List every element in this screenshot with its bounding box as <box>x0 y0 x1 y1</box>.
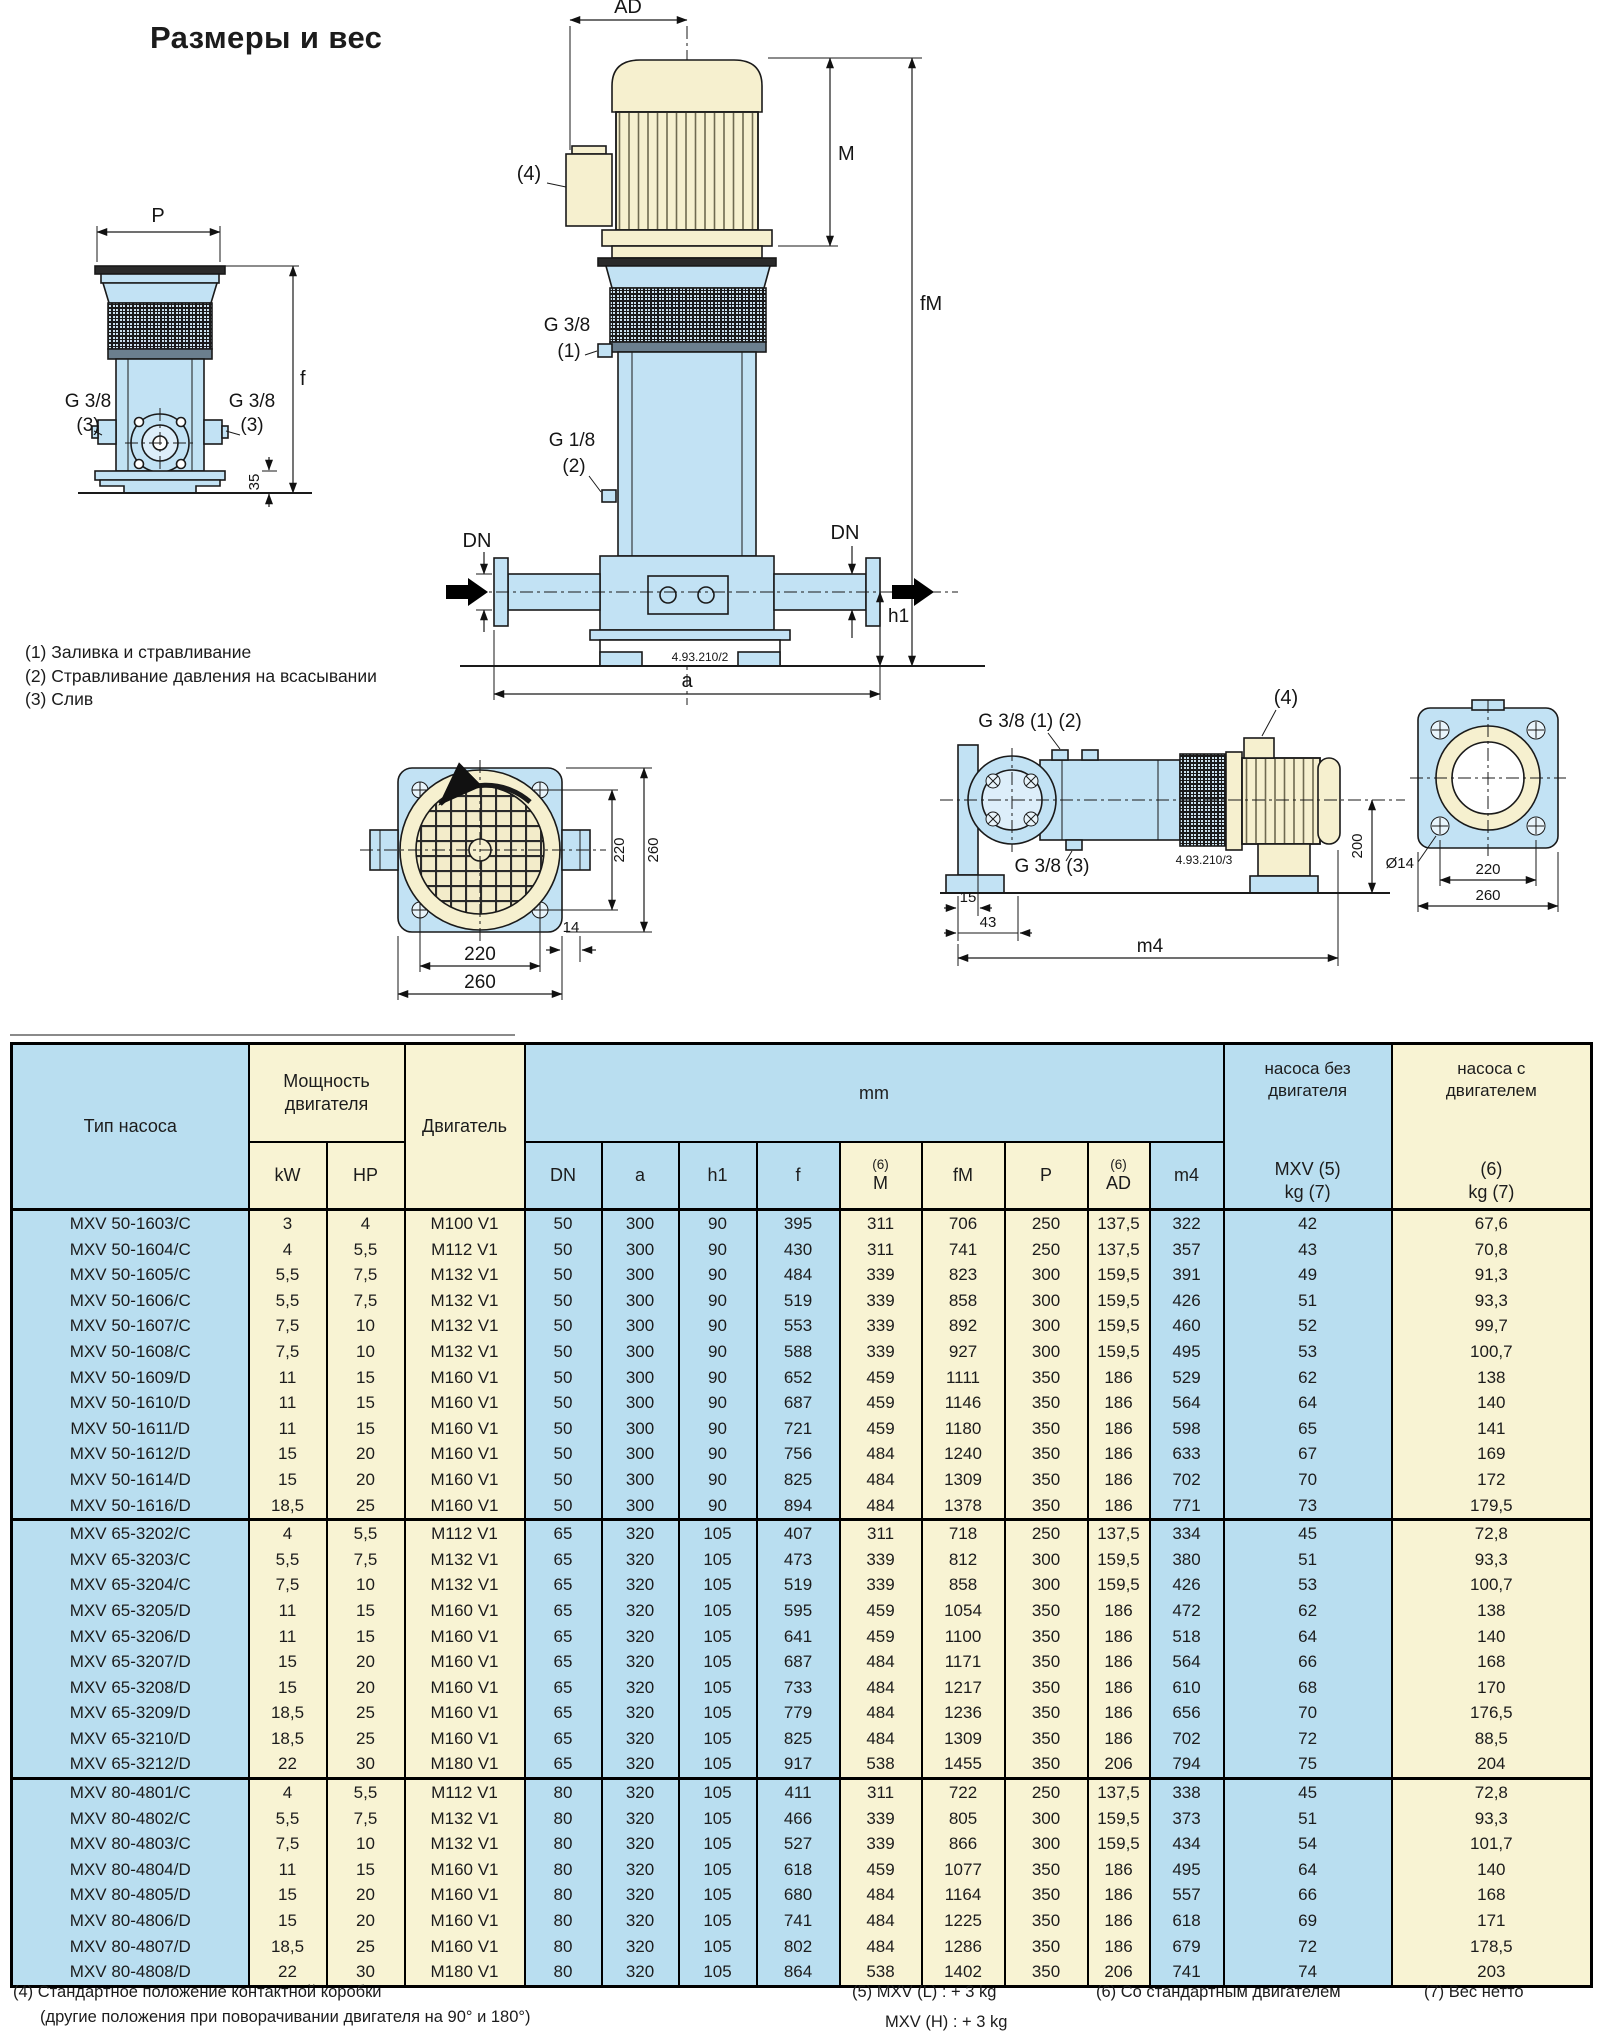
cell-ad: 137,5 <box>1088 1237 1150 1263</box>
cell-ad: 137,5 <box>1088 1210 1150 1237</box>
cell-a: 300 <box>602 1339 679 1365</box>
cell-dn: 50 <box>525 1237 602 1263</box>
table-row: MXV 65-3206/D1115M160 V16532010564145911… <box>12 1624 1592 1650</box>
cell-p: 350 <box>1005 1751 1088 1778</box>
cell-ad: 186 <box>1088 1700 1150 1726</box>
cell-f: 473 <box>757 1547 840 1573</box>
cell-ad: 186 <box>1088 1390 1150 1416</box>
cell-dn: 50 <box>525 1416 602 1442</box>
cell-f: 733 <box>757 1675 840 1701</box>
table-row: MXV 50-1605/C5,57,5M132 V150300904843398… <box>12 1262 1592 1288</box>
cell-m4: 702 <box>1150 1726 1224 1752</box>
table-row: MXV 80-4806/D1520M160 V18032010574148412… <box>12 1908 1592 1934</box>
port-label-3-left: (3) <box>76 415 99 436</box>
cell-p: 300 <box>1005 1339 1088 1365</box>
cell-dn: 65 <box>525 1520 602 1547</box>
cell-kg-pump: 64 <box>1224 1390 1392 1416</box>
cell-a: 300 <box>602 1288 679 1314</box>
cell-m: 484 <box>840 1934 922 1960</box>
cell-m4: 334 <box>1150 1520 1224 1547</box>
cell-f: 430 <box>757 1237 840 1263</box>
cell-kg-pump: 49 <box>1224 1262 1392 1288</box>
cell-type: MXV 65-3203/C <box>12 1547 249 1573</box>
table-row: MXV 50-1604/C45,5M112 V15030090430311741… <box>12 1237 1592 1263</box>
cell-kg-pump: 53 <box>1224 1339 1392 1365</box>
cell-kw: 18,5 <box>249 1700 327 1726</box>
cell-a: 320 <box>602 1751 679 1778</box>
cell-m: 339 <box>840 1806 922 1832</box>
col-header-a: a <box>602 1142 679 1209</box>
table-row: MXV 50-1616/D18,525M160 V150300908944841… <box>12 1493 1592 1520</box>
cell-dn: 80 <box>525 1806 602 1832</box>
table-row: MXV 50-1607/C7,510M132 V1503009055333989… <box>12 1313 1592 1339</box>
cell-p: 350 <box>1005 1959 1088 1986</box>
cell-hp: 15 <box>327 1598 405 1624</box>
cell-m: 484 <box>840 1649 922 1675</box>
cell-motor: M160 V1 <box>405 1934 525 1960</box>
cell-kw: 11 <box>249 1857 327 1883</box>
cell-m4: 564 <box>1150 1649 1224 1675</box>
cell-dn: 80 <box>525 1831 602 1857</box>
cell-h1: 105 <box>679 1726 757 1752</box>
note-3: (3) Слив <box>25 688 377 712</box>
cell-hp: 25 <box>327 1726 405 1752</box>
table-row: MXV 50-1614/D1520M160 V15030090825484130… <box>12 1467 1592 1493</box>
footnote-6: (6) Со стандартным двигателем <box>1096 1980 1341 2005</box>
cell-m4: 391 <box>1150 1262 1224 1288</box>
cell-fm: 718 <box>922 1520 1005 1547</box>
table-row: MXV 65-3209/D18,525M160 V165320105779484… <box>12 1700 1592 1726</box>
col-header-pump-type: Тип насоса <box>12 1044 249 1210</box>
cell-f: 721 <box>757 1416 840 1442</box>
table-row: MXV 80-4805/D1520M160 V18032010568048411… <box>12 1882 1592 1908</box>
cell-m: 484 <box>840 1467 922 1493</box>
cell-p: 350 <box>1005 1700 1088 1726</box>
cell-type: MXV 65-3212/D <box>12 1751 249 1778</box>
cell-m: 459 <box>840 1624 922 1650</box>
cell-kw: 11 <box>249 1624 327 1650</box>
cell-hp: 25 <box>327 1934 405 1960</box>
cell-motor: M160 V1 <box>405 1908 525 1934</box>
table-row: MXV 50-1609/D1115M160 V15030090652459111… <box>12 1365 1592 1391</box>
cell-hp: 20 <box>327 1675 405 1701</box>
cell-kg-total: 178,5 <box>1392 1934 1592 1960</box>
cell-dn: 80 <box>525 1934 602 1960</box>
cell-a: 320 <box>602 1624 679 1650</box>
cell-motor: M160 V1 <box>405 1365 525 1391</box>
cell-kg-total: 176,5 <box>1392 1700 1592 1726</box>
table-section: MXV 50-1603/C34M100 V1503009039531170625… <box>12 1210 1592 1520</box>
cell-kg-pump: 66 <box>1224 1882 1392 1908</box>
table-row: MXV 80-4807/D18,525M160 V180320105802484… <box>12 1934 1592 1960</box>
dim-label-14: 14 <box>563 919 580 936</box>
cell-f: 553 <box>757 1313 840 1339</box>
dim-label-h1: h1 <box>888 606 909 627</box>
cell-hp: 15 <box>327 1857 405 1883</box>
table-row: MXV 50-1606/C5,57,5M132 V150300905193398… <box>12 1288 1592 1314</box>
cell-h1: 90 <box>679 1441 757 1467</box>
cell-kw: 7,5 <box>249 1831 327 1857</box>
cell-a: 320 <box>602 1598 679 1624</box>
cell-kw: 5,5 <box>249 1547 327 1573</box>
cell-kg-total: 138 <box>1392 1598 1592 1624</box>
cell-type: MXV 50-1611/D <box>12 1416 249 1442</box>
cell-kw: 5,5 <box>249 1262 327 1288</box>
cell-hp: 20 <box>327 1882 405 1908</box>
cell-m: 339 <box>840 1339 922 1365</box>
cell-dn: 50 <box>525 1313 602 1339</box>
cell-type: MXV 50-1603/C <box>12 1210 249 1237</box>
cell-fm: 866 <box>922 1831 1005 1857</box>
cell-m4: 518 <box>1150 1624 1224 1650</box>
cell-kw: 18,5 <box>249 1493 327 1520</box>
cell-m4: 557 <box>1150 1882 1224 1908</box>
cell-h1: 105 <box>679 1547 757 1573</box>
cell-type: MXV 80-4801/C <box>12 1779 249 1806</box>
cell-m4: 434 <box>1150 1831 1224 1857</box>
cell-m: 484 <box>840 1493 922 1520</box>
cell-kw: 11 <box>249 1416 327 1442</box>
cell-h1: 105 <box>679 1700 757 1726</box>
port-label-g38-12: G 3/8 (1) (2) <box>978 711 1081 732</box>
cell-a: 320 <box>602 1726 679 1752</box>
cell-fm: 1225 <box>922 1908 1005 1934</box>
cell-kw: 11 <box>249 1598 327 1624</box>
cell-hp: 20 <box>327 1649 405 1675</box>
cell-m4: 679 <box>1150 1934 1224 1960</box>
cell-fm: 1286 <box>922 1934 1005 1960</box>
cell-p: 350 <box>1005 1726 1088 1752</box>
cell-type: MXV 65-3202/C <box>12 1520 249 1547</box>
cell-h1: 90 <box>679 1493 757 1520</box>
cell-p: 350 <box>1005 1416 1088 1442</box>
cell-m4: 495 <box>1150 1339 1224 1365</box>
cell-h1: 105 <box>679 1779 757 1806</box>
cell-a: 320 <box>602 1649 679 1675</box>
table-header: Тип насоса Мощность двигателя Двигатель … <box>12 1044 1592 1210</box>
cell-fm: 1309 <box>922 1726 1005 1752</box>
cell-hp: 25 <box>327 1493 405 1520</box>
cell-m: 459 <box>840 1416 922 1442</box>
cell-ad: 186 <box>1088 1726 1150 1752</box>
col-header-mm: mm <box>525 1044 1224 1143</box>
cell-a: 320 <box>602 1520 679 1547</box>
cell-ad: 186 <box>1088 1675 1150 1701</box>
cell-a: 300 <box>602 1262 679 1288</box>
cell-ad: 186 <box>1088 1416 1150 1442</box>
cell-kg-pump: 45 <box>1224 1779 1392 1806</box>
cell-kg-total: 138 <box>1392 1365 1592 1391</box>
cell-kw: 15 <box>249 1441 327 1467</box>
cell-kw: 4 <box>249 1520 327 1547</box>
cell-p: 350 <box>1005 1624 1088 1650</box>
cell-p: 350 <box>1005 1467 1088 1493</box>
port-label-g38: G 3/8 <box>544 315 590 336</box>
cell-h1: 90 <box>679 1288 757 1314</box>
cell-dn: 50 <box>525 1365 602 1391</box>
cell-ad: 137,5 <box>1088 1520 1150 1547</box>
table-row: MXV 65-3212/D2230M180 V16532010591753814… <box>12 1751 1592 1778</box>
cell-hp: 20 <box>327 1441 405 1467</box>
cell-p: 300 <box>1005 1313 1088 1339</box>
table-row: MXV 80-4803/C7,510M132 V1803201055273398… <box>12 1831 1592 1857</box>
cell-hp: 20 <box>327 1467 405 1493</box>
cell-kw: 15 <box>249 1908 327 1934</box>
cell-f: 519 <box>757 1572 840 1598</box>
cell-kg-total: 171 <box>1392 1908 1592 1934</box>
dim-label-220-horiz: 220 <box>464 944 496 965</box>
cell-fm: 805 <box>922 1806 1005 1832</box>
cell-m: 538 <box>840 1751 922 1778</box>
cell-f: 825 <box>757 1726 840 1752</box>
cell-fm: 1180 <box>922 1416 1005 1442</box>
cell-dn: 50 <box>525 1210 602 1237</box>
cell-f: 652 <box>757 1365 840 1391</box>
cell-kg-pump: 62 <box>1224 1598 1392 1624</box>
cell-f: 917 <box>757 1751 840 1778</box>
cell-type: MXV 50-1608/C <box>12 1339 249 1365</box>
cell-h1: 90 <box>679 1365 757 1391</box>
cell-m: 339 <box>840 1547 922 1573</box>
cell-kg-total: 100,7 <box>1392 1572 1592 1598</box>
cell-p: 300 <box>1005 1288 1088 1314</box>
cell-p: 350 <box>1005 1441 1088 1467</box>
cell-kg-total: 101,7 <box>1392 1831 1592 1857</box>
cell-kg-total: 172 <box>1392 1467 1592 1493</box>
cell-kg-pump: 54 <box>1224 1831 1392 1857</box>
cell-kw: 11 <box>249 1365 327 1391</box>
cell-kg-pump: 75 <box>1224 1751 1392 1778</box>
dim-label-f: f <box>300 368 306 390</box>
cell-ad: 186 <box>1088 1908 1150 1934</box>
dim-label-p: P <box>151 205 164 227</box>
cell-a: 300 <box>602 1441 679 1467</box>
cell-hp: 15 <box>327 1365 405 1391</box>
table-row: MXV 80-4804/D1115M160 V18032010561845910… <box>12 1857 1592 1883</box>
dim-label-d14: Ø14 <box>1386 855 1414 872</box>
table-row: MXV 80-4802/C5,57,5M132 V180320105466339… <box>12 1806 1592 1832</box>
note-1: (1) Заливка и стравливание <box>25 641 377 665</box>
cell-ad: 186 <box>1088 1493 1150 1520</box>
cell-f: 527 <box>757 1831 840 1857</box>
cell-p: 350 <box>1005 1390 1088 1416</box>
cell-type: MXV 65-3205/D <box>12 1598 249 1624</box>
dim-label-15: 15 <box>960 889 977 906</box>
cell-fm: 858 <box>922 1288 1005 1314</box>
cell-a: 320 <box>602 1675 679 1701</box>
cell-kw: 18,5 <box>249 1934 327 1960</box>
cell-dn: 65 <box>525 1598 602 1624</box>
cell-motor: M160 V1 <box>405 1700 525 1726</box>
cell-f: 484 <box>757 1262 840 1288</box>
cell-h1: 105 <box>679 1624 757 1650</box>
cell-a: 300 <box>602 1237 679 1263</box>
cell-dn: 80 <box>525 1882 602 1908</box>
cell-p: 350 <box>1005 1908 1088 1934</box>
cell-m: 484 <box>840 1882 922 1908</box>
cell-motor: M160 V1 <box>405 1441 525 1467</box>
cell-m: 459 <box>840 1598 922 1624</box>
cell-kw: 5,5 <box>249 1806 327 1832</box>
dim-label-m4: m4 <box>1137 936 1164 957</box>
dim-label-a: a <box>681 670 693 692</box>
cell-kw: 7,5 <box>249 1572 327 1598</box>
cell-kg-total: 99,7 <box>1392 1313 1592 1339</box>
cell-hp: 5,5 <box>327 1237 405 1263</box>
port-label-g38-right: G 3/8 <box>229 391 275 412</box>
cell-hp: 7,5 <box>327 1288 405 1314</box>
cell-kw: 3 <box>249 1210 327 1237</box>
cell-f: 741 <box>757 1908 840 1934</box>
cell-hp: 30 <box>327 1751 405 1778</box>
cell-fm: 1455 <box>922 1751 1005 1778</box>
table-row: MXV 50-1610/D1115M160 V15030090687459114… <box>12 1390 1592 1416</box>
cell-hp: 7,5 <box>327 1547 405 1573</box>
cell-p: 250 <box>1005 1520 1088 1547</box>
cell-ad: 186 <box>1088 1857 1150 1883</box>
cell-m: 311 <box>840 1520 922 1547</box>
cell-m: 311 <box>840 1210 922 1237</box>
cell-h1: 90 <box>679 1262 757 1288</box>
cell-motor: M132 V1 <box>405 1313 525 1339</box>
cell-hp: 20 <box>327 1908 405 1934</box>
cell-motor: M112 V1 <box>405 1237 525 1263</box>
col-header-m: (6) M <box>840 1142 922 1209</box>
cell-motor: M160 V1 <box>405 1624 525 1650</box>
cell-type: MXV 50-1609/D <box>12 1365 249 1391</box>
cell-m4: 618 <box>1150 1908 1224 1934</box>
cell-motor: M100 V1 <box>405 1210 525 1237</box>
dim-label-dn-left: DN <box>463 530 492 552</box>
cell-m4: 564 <box>1150 1390 1224 1416</box>
cell-motor: M112 V1 <box>405 1520 525 1547</box>
port-label-2: (2) <box>562 456 585 477</box>
cell-fm: 812 <box>922 1547 1005 1573</box>
cell-p: 350 <box>1005 1365 1088 1391</box>
cell-kg-pump: 70 <box>1224 1700 1392 1726</box>
table-row: MXV 50-1603/C34M100 V1503009039531170625… <box>12 1210 1592 1237</box>
cell-fm: 1054 <box>922 1598 1005 1624</box>
cell-p: 300 <box>1005 1262 1088 1288</box>
cell-kg-pump: 52 <box>1224 1313 1392 1339</box>
cell-m4: 357 <box>1150 1237 1224 1263</box>
cell-type: MXV 80-4806/D <box>12 1908 249 1934</box>
dim-label-dn-right: DN <box>831 522 860 544</box>
cell-kg-total: 179,5 <box>1392 1493 1592 1520</box>
table-row: MXV 65-3208/D1520M160 V16532010573348412… <box>12 1675 1592 1701</box>
cell-ad: 159,5 <box>1088 1831 1150 1857</box>
cell-m4: 771 <box>1150 1493 1224 1520</box>
cell-motor: M160 V1 <box>405 1416 525 1442</box>
cell-ad: 186 <box>1088 1467 1150 1493</box>
cell-m4: 794 <box>1150 1751 1224 1778</box>
cell-motor: M160 V1 <box>405 1882 525 1908</box>
cell-fm: 858 <box>922 1572 1005 1598</box>
cell-h1: 105 <box>679 1572 757 1598</box>
cell-kg-total: 170 <box>1392 1675 1592 1701</box>
footnote-7: (7) Вес нетто <box>1424 1980 1524 2005</box>
port-label-g38-3: G 3/8 (3) <box>1015 856 1090 877</box>
cell-a: 300 <box>602 1390 679 1416</box>
table-row: MXV 50-1608/C7,510M132 V1503009058833992… <box>12 1339 1592 1365</box>
cell-type: MXV 50-1604/C <box>12 1237 249 1263</box>
legend-notes: (1) Заливка и стравливание (2) Стравлива… <box>25 641 377 712</box>
cell-a: 320 <box>602 1806 679 1832</box>
cell-dn: 65 <box>525 1751 602 1778</box>
cell-h1: 105 <box>679 1831 757 1857</box>
col-header-power: Мощность двигателя <box>249 1044 405 1143</box>
footnote-5: (5) MXV (L) : + 3 kg MXV (H) : + 3 kg <box>852 1980 1007 2035</box>
cell-f: 641 <box>757 1624 840 1650</box>
cell-type: MXV 80-4804/D <box>12 1857 249 1883</box>
table-row: MXV 65-3202/C45,5M112 V16532010540731171… <box>12 1520 1592 1547</box>
col-header-weight-pump-only: насоса без двигателя MXV (5) kg (7) <box>1224 1044 1392 1210</box>
cell-m: 484 <box>840 1908 922 1934</box>
cell-kg-total: 140 <box>1392 1624 1592 1650</box>
table-row: MXV 50-1611/D1115M160 V15030090721459118… <box>12 1416 1592 1442</box>
cell-p: 300 <box>1005 1831 1088 1857</box>
table-row: MXV 80-4801/C45,5M112 V18032010541131172… <box>12 1779 1592 1806</box>
cell-motor: M132 V1 <box>405 1806 525 1832</box>
cell-type: MXV 65-3210/D <box>12 1726 249 1752</box>
table-row: MXV 65-3207/D1520M160 V16532010568748411… <box>12 1649 1592 1675</box>
cell-p: 350 <box>1005 1675 1088 1701</box>
cell-motor: M132 V1 <box>405 1288 525 1314</box>
cell-m: 459 <box>840 1365 922 1391</box>
cell-dn: 80 <box>525 1857 602 1883</box>
cell-m4: 338 <box>1150 1779 1224 1806</box>
cell-kg-pump: 69 <box>1224 1908 1392 1934</box>
cell-ad: 186 <box>1088 1365 1150 1391</box>
port-label-g18: G 1/8 <box>549 430 595 451</box>
cell-ad: 159,5 <box>1088 1547 1150 1573</box>
cell-p: 250 <box>1005 1210 1088 1237</box>
cell-kw: 22 <box>249 1751 327 1778</box>
cell-dn: 65 <box>525 1649 602 1675</box>
cell-hp: 15 <box>327 1624 405 1650</box>
cell-dn: 65 <box>525 1726 602 1752</box>
cell-type: MXV 50-1606/C <box>12 1288 249 1314</box>
cell-h1: 90 <box>679 1416 757 1442</box>
col-header-m4: m4 <box>1150 1142 1224 1209</box>
cell-kg-total: 168 <box>1392 1882 1592 1908</box>
cell-m: 459 <box>840 1857 922 1883</box>
col-header-motor: Двигатель <box>405 1044 525 1210</box>
cell-kg-pump: 66 <box>1224 1649 1392 1675</box>
cell-dn: 50 <box>525 1441 602 1467</box>
cell-ad: 186 <box>1088 1598 1150 1624</box>
cell-type: MXV 50-1605/C <box>12 1262 249 1288</box>
cell-a: 320 <box>602 1700 679 1726</box>
cell-kg-total: 72,8 <box>1392 1520 1592 1547</box>
cell-fm: 706 <box>922 1210 1005 1237</box>
cell-motor: M180 V1 <box>405 1751 525 1778</box>
cell-hp: 25 <box>327 1700 405 1726</box>
cell-f: 411 <box>757 1779 840 1806</box>
cell-hp: 10 <box>327 1831 405 1857</box>
cell-m4: 495 <box>1150 1857 1224 1883</box>
cell-kw: 4 <box>249 1237 327 1263</box>
cell-fm: 1100 <box>922 1624 1005 1650</box>
cell-m: 484 <box>840 1700 922 1726</box>
cell-kg-total: 88,5 <box>1392 1726 1592 1752</box>
port-label-g38-left: G 3/8 <box>65 391 111 412</box>
cell-motor: M132 V1 <box>405 1547 525 1573</box>
cell-fm: 823 <box>922 1262 1005 1288</box>
cell-dn: 80 <box>525 1779 602 1806</box>
cell-h1: 105 <box>679 1908 757 1934</box>
cell-motor: M132 V1 <box>405 1262 525 1288</box>
